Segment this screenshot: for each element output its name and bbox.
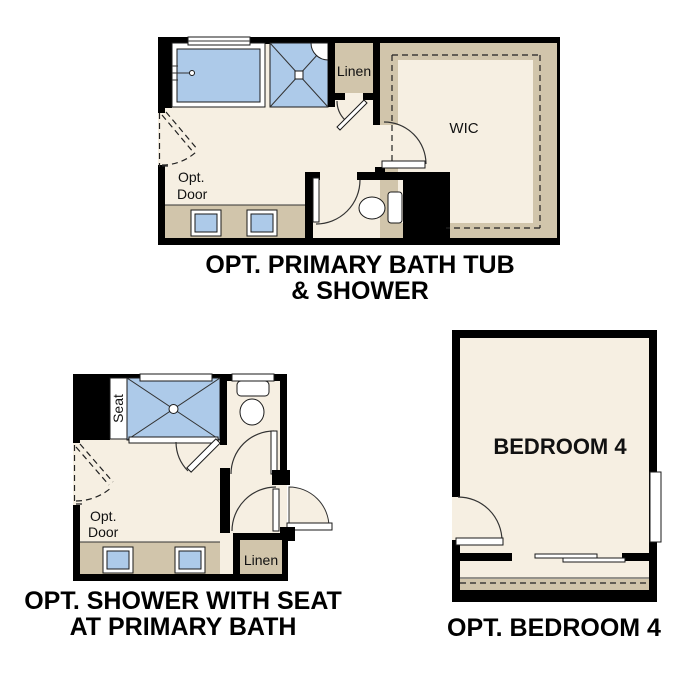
- drain-icon: [295, 71, 303, 79]
- floorplan-shower-with-seat: Seat: [73, 374, 340, 581]
- shower: [270, 43, 328, 107]
- opt-door-label: Door: [88, 524, 119, 540]
- sink-icon: [103, 547, 133, 573]
- linen-closet: Linen: [233, 533, 290, 581]
- window: [140, 374, 274, 381]
- wall: [328, 43, 335, 107]
- room-label: BEDROOM 4: [493, 434, 627, 459]
- wall: [373, 43, 380, 125]
- vanity-counter: [165, 205, 305, 238]
- walls: [452, 330, 657, 602]
- window: [188, 37, 250, 45]
- seat-label: Seat: [110, 394, 126, 423]
- floorplan-sheet: Linen WIC: [0, 0, 687, 687]
- plan-title-bedroom-4: OPT. BEDROOM 4: [420, 615, 687, 641]
- sink-icon: [191, 210, 221, 236]
- sink-icon: [175, 547, 205, 573]
- plan-title-primary-bath: OPT. PRIMARY BATH TUB & SHOWER: [130, 252, 590, 304]
- opt-door-label: Opt.: [90, 508, 116, 524]
- bathtub: [172, 43, 265, 107]
- shower-seat: Seat: [110, 378, 127, 439]
- linen-label: Linen: [337, 63, 371, 79]
- wic-label: WIC: [449, 120, 478, 137]
- floorplan-bedroom-4: BEDROOM 4: [452, 330, 662, 602]
- window: [650, 472, 661, 542]
- vanity-counter: [80, 542, 220, 574]
- door-swing: [280, 487, 332, 541]
- opt-door-label: Door: [177, 186, 208, 202]
- opt-door-label: Opt.: [178, 169, 204, 185]
- plan-title-shower-seat: OPT. SHOWER WITH SEAT AT PRIMARY BATH: [0, 588, 366, 640]
- floorplan-primary-bath-tub-shower: Linen WIC: [158, 37, 560, 245]
- sink-icon: [247, 210, 277, 236]
- drain-icon: [169, 405, 178, 414]
- linen-label: Linen: [244, 552, 278, 568]
